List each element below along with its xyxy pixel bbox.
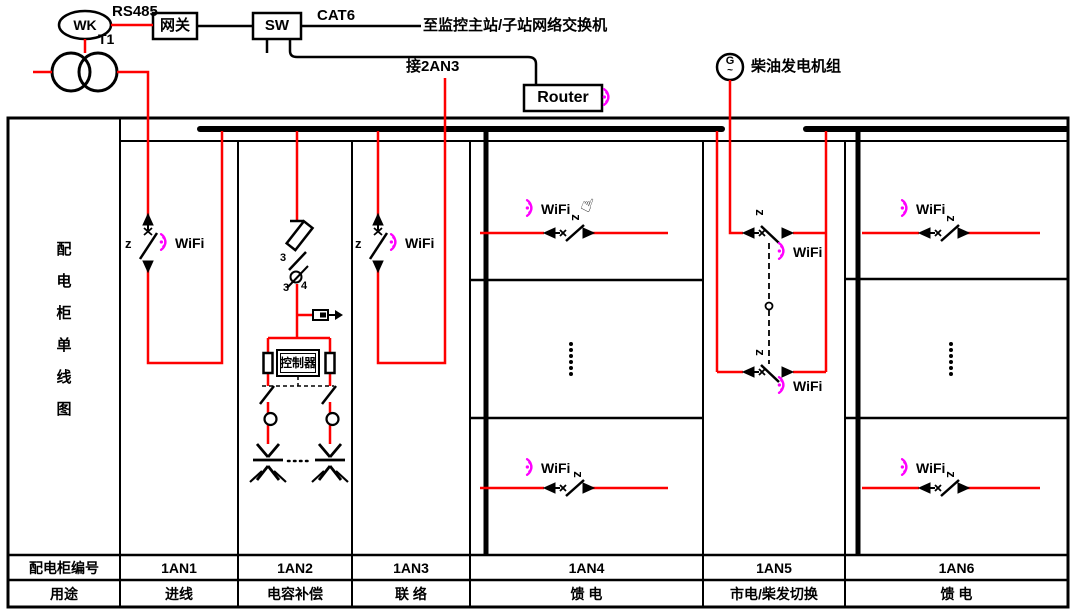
- cabinet-id: 1AN4: [470, 557, 703, 578]
- table-row1-header: 配电柜编号: [8, 557, 120, 578]
- breaker-symbol-1an3: [370, 214, 387, 272]
- table-row2-header: 用途: [8, 583, 120, 604]
- wifi-label: WiFi: [405, 236, 434, 250]
- cabinet-use: 馈 电: [845, 583, 1068, 604]
- wk-label: WK: [68, 18, 102, 32]
- more-feeders-dots-1an4: [569, 342, 573, 376]
- wifi-icon[interactable]: [603, 89, 609, 105]
- wifi-icon[interactable]: [390, 234, 396, 250]
- breaker-z-label: z: [754, 209, 767, 216]
- cabinet-id: 1AN1: [120, 557, 238, 578]
- wifi-icon[interactable]: [778, 243, 784, 259]
- gateway-label: 网关: [153, 18, 197, 33]
- breaker-z-label: z: [572, 471, 585, 478]
- feeder-breaker-1an6-bottom: [919, 480, 969, 496]
- title-char: 电: [56, 270, 71, 291]
- cabinet-id: 1AN2: [238, 557, 352, 578]
- cabinet-use: 电容补偿: [238, 583, 352, 604]
- switch-3-label: 3: [283, 283, 289, 294]
- title-char: 柜: [56, 302, 71, 323]
- sw-label: SW: [253, 18, 301, 33]
- transformer-label: T1: [98, 32, 114, 46]
- title-char: 图: [56, 398, 71, 419]
- to-monitor-label: 至监控主站/子站网络交换机: [423, 18, 607, 33]
- tie-feeder-1an3: [378, 78, 445, 363]
- wifi-label: WiFi: [793, 379, 822, 393]
- cabinet-use: 进线: [120, 583, 238, 604]
- transfer-switch-mains: [743, 365, 793, 382]
- feeder-breaker-1an6-top: [919, 225, 969, 241]
- wifi-label: WiFi: [916, 202, 945, 216]
- diagram-title-vertical: 配 电 柜 单 线 图: [8, 238, 120, 419]
- router-label: Router: [524, 90, 602, 106]
- wifi-icon[interactable]: [901, 459, 907, 475]
- title-char: 线: [56, 366, 71, 387]
- feeder-breaker-1an4-top: [544, 225, 594, 241]
- cabinet-id: 1AN5: [703, 557, 845, 578]
- cabinet-id: 1AN6: [845, 557, 1068, 578]
- wifi-icon[interactable]: [526, 200, 532, 216]
- switch-4-label: 4: [301, 281, 307, 292]
- rs485-label: RS485: [112, 4, 158, 19]
- capacitor-circuit-symbols-1an2: [250, 221, 348, 482]
- wifi-icon[interactable]: [160, 234, 166, 250]
- wifi-label: WiFi: [793, 245, 822, 259]
- cabinet-use: 联 络: [352, 583, 470, 604]
- generator-label: 柴油发电机组: [751, 59, 841, 74]
- capacitor-symbol-right: [312, 444, 348, 482]
- transformer-symbol: [52, 53, 117, 91]
- breaker-z-label: z: [945, 215, 958, 222]
- generator-wave: ~: [721, 66, 739, 76]
- wifi-label: WiFi: [541, 202, 570, 216]
- cat6-label: CAT6: [317, 8, 355, 23]
- single-line-diagram: WK RS485 网关 SW CAT6 至监控主站/子站网络交换机 接2AN3 …: [0, 0, 1080, 614]
- wifi-label: WiFi: [541, 461, 570, 475]
- cabinet-use: 馈 电: [470, 583, 703, 604]
- wifi-icon[interactable]: [778, 377, 784, 393]
- capacitor-symbol-left: [250, 444, 286, 482]
- controller-label: 控制器: [279, 357, 317, 369]
- breaker-z-label: z: [570, 214, 583, 221]
- more-feeders-dots-1an6: [949, 342, 953, 376]
- breaker-z-label: z: [125, 237, 132, 250]
- to-2an3-label: 接2AN3: [406, 59, 459, 74]
- switch-3-label: 3: [280, 253, 286, 264]
- cabinet-id: 1AN3: [352, 557, 470, 578]
- transfer-switch-diesel: [743, 226, 793, 243]
- mechanical-interlock: [766, 243, 773, 364]
- title-char: 配: [56, 238, 71, 259]
- wifi-icon[interactable]: [901, 200, 907, 216]
- breaker-symbol-1an1: [140, 214, 157, 272]
- title-char: 单: [56, 334, 71, 355]
- wifi-label: WiFi: [175, 236, 204, 250]
- feeder-breaker-1an4-bottom: [544, 480, 594, 496]
- cabinet-use: 市电/柴发切换: [703, 583, 845, 604]
- breaker-z-label: z: [754, 349, 767, 356]
- breaker-z-label: z: [945, 471, 958, 478]
- breaker-z-label: z: [355, 237, 362, 250]
- wifi-icon[interactable]: [526, 459, 532, 475]
- wifi-label: WiFi: [916, 461, 945, 475]
